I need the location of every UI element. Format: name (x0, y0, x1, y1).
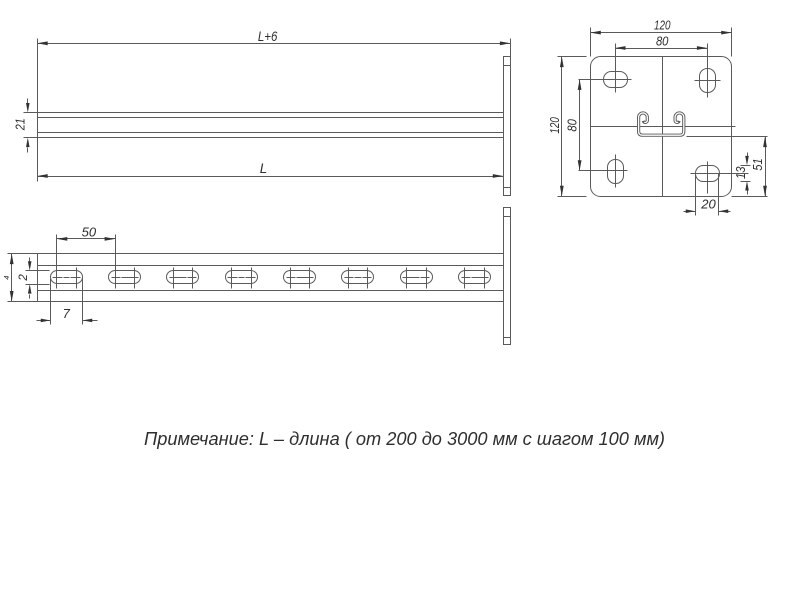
svg-text:7: 7 (63, 306, 71, 321)
svg-text:80: 80 (564, 118, 579, 131)
svg-text:13: 13 (733, 166, 748, 179)
svg-text:Примечание: L – длина ( от 200: Примечание: L – длина ( от 200 до 3000 м… (144, 429, 665, 449)
svg-text:2: 2 (18, 274, 30, 282)
svg-text:80: 80 (656, 33, 669, 48)
svg-text:51: 51 (750, 158, 765, 171)
svg-text:50: 50 (82, 224, 97, 239)
svg-text:20: 20 (700, 196, 716, 211)
svg-text:120: 120 (654, 18, 671, 33)
svg-text:4: 4 (2, 276, 11, 280)
svg-text:L+6: L+6 (258, 29, 278, 44)
svg-text:120: 120 (547, 117, 562, 134)
svg-text:21: 21 (13, 118, 28, 131)
svg-text:L: L (260, 161, 268, 176)
